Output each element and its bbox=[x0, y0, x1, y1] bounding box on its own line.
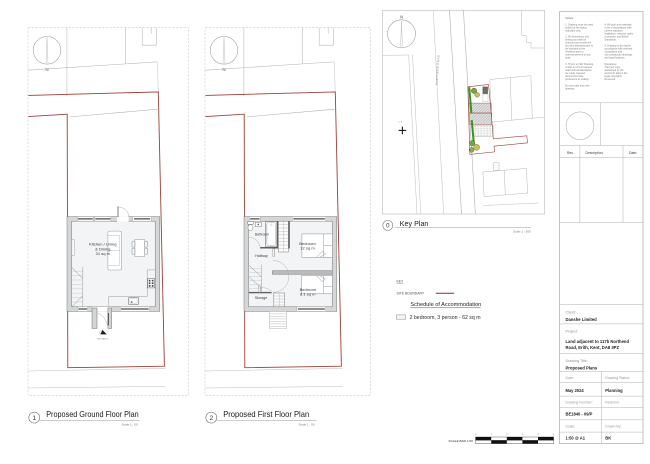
svg-text:Drawing Title:: Drawing Title: bbox=[566, 359, 588, 363]
svg-text:1: 1 bbox=[32, 415, 36, 422]
svg-text:Bathroom: Bathroom bbox=[255, 233, 270, 237]
svg-text:17 A: 17 A bbox=[398, 121, 403, 124]
svg-text:Notes:: Notes: bbox=[565, 16, 574, 20]
svg-text:Revision:: Revision: bbox=[605, 400, 619, 404]
svg-text:Client:: Client: bbox=[566, 310, 576, 314]
svg-text:12 sq m: 12 sq m bbox=[300, 246, 315, 251]
svg-text:work.: work. bbox=[565, 56, 571, 59]
svg-text:Project:: Project: bbox=[566, 329, 579, 333]
svg-text:Danshe Limited: Danshe Limited bbox=[566, 317, 598, 322]
svg-text:N: N bbox=[222, 67, 225, 72]
svg-text:Drawn By:: Drawn By: bbox=[605, 424, 621, 428]
svg-text:Scale:: Scale: bbox=[566, 424, 576, 428]
svg-text:indicated only.: indicated only. bbox=[565, 29, 581, 32]
svg-text:May 2024: May 2024 bbox=[566, 388, 585, 393]
svg-text:Scale 1 : 50: Scale 1 : 50 bbox=[122, 423, 138, 427]
svg-text:Road, Erith, Kent, DA8 3PZ: Road, Erith, Kent, DA8 3PZ bbox=[566, 345, 620, 350]
svg-text:ENTRANCE: ENTRANCE bbox=[97, 338, 109, 341]
svg-text:2 bedroom, 3 person - 62 sq m: 2 bedroom, 3 person - 62 sq m bbox=[410, 315, 481, 321]
svg-text:Schedule of Accommodation: Schedule of Accommodation bbox=[410, 302, 481, 308]
svg-text:1:50 @ A1: 1:50 @ A1 bbox=[566, 436, 586, 441]
svg-text:Scale 1 : 500: Scale 1 : 500 bbox=[513, 229, 531, 233]
svg-text:Storage: Storage bbox=[255, 296, 268, 300]
svg-text:and specifications.: and specifications. bbox=[605, 56, 626, 59]
svg-text:N: N bbox=[45, 67, 48, 72]
svg-text:2: 2 bbox=[209, 415, 213, 422]
svg-text:Proposed First Floor Plan: Proposed First Floor Plan bbox=[223, 410, 309, 419]
svg-text:Land adjacent to 117b Northend: Land adjacent to 117b Northend bbox=[566, 339, 630, 344]
svg-text:Date:: Date: bbox=[629, 151, 637, 155]
svg-text:Hallway: Hallway bbox=[255, 254, 268, 258]
svg-text:Proposed Plans: Proposed Plans bbox=[566, 365, 598, 370]
svg-text:SITE BOUNDARY: SITE BOUNDARY bbox=[397, 292, 425, 296]
svg-text:Date:: Date: bbox=[566, 376, 574, 380]
svg-text:BE1840 - 09/P: BE1840 - 09/P bbox=[566, 411, 593, 416]
svg-text:Drawing Number:: Drawing Number: bbox=[566, 400, 593, 404]
svg-text:BK: BK bbox=[605, 436, 611, 441]
svg-text:Drawing Status:: Drawing Status: bbox=[605, 376, 630, 380]
svg-text:Proposed Ground Floor Plan: Proposed Ground Floor Plan bbox=[46, 410, 139, 419]
svg-text:Reserved.: Reserved. bbox=[605, 78, 617, 81]
svg-text:Rev.: Rev. bbox=[567, 151, 574, 155]
svg-text:SCALE BAR 1:50: SCALE BAR 1:50 bbox=[449, 439, 474, 443]
svg-text:Key Plan: Key Plan bbox=[400, 219, 429, 228]
svg-text:N: N bbox=[400, 14, 403, 19]
svg-text:Scale 1 : 50: Scale 1 : 50 bbox=[299, 423, 315, 427]
svg-text:31 sq m: 31 sq m bbox=[96, 251, 111, 256]
svg-text:8.1 sq m: 8.1 sq m bbox=[300, 292, 316, 297]
svg-text:preference to scaling.: preference to scaling. bbox=[565, 78, 589, 81]
svg-text:Planning: Planning bbox=[605, 388, 623, 393]
svg-text:KEY: KEY bbox=[397, 280, 405, 284]
svg-text:Description:: Description: bbox=[586, 151, 604, 155]
svg-text:Standards.: Standards. bbox=[605, 38, 617, 41]
svg-text:drawing.: drawing. bbox=[565, 87, 575, 90]
